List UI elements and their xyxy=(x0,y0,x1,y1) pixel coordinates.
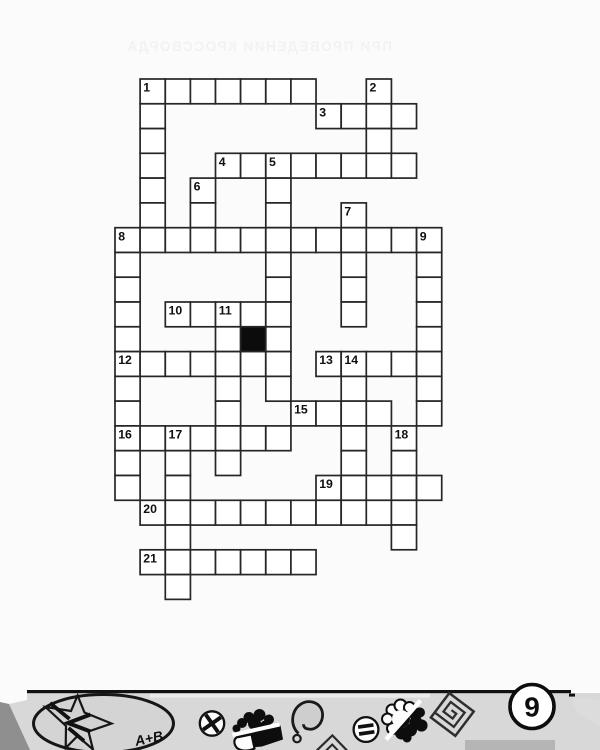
svg-text:8: 8 xyxy=(118,229,125,243)
svg-text:16: 16 xyxy=(118,428,132,442)
svg-text:9: 9 xyxy=(420,229,427,243)
svg-text:15: 15 xyxy=(294,403,308,417)
svg-text:14: 14 xyxy=(344,353,358,367)
svg-text:21: 21 xyxy=(143,551,157,565)
svg-text:2: 2 xyxy=(370,81,377,95)
svg-text:5: 5 xyxy=(269,155,276,169)
svg-text:1: 1 xyxy=(143,81,150,95)
svg-text:11: 11 xyxy=(219,304,232,318)
svg-text:12: 12 xyxy=(118,353,132,367)
svg-text:20: 20 xyxy=(143,502,157,516)
svg-text:13: 13 xyxy=(319,353,333,367)
svg-text:4: 4 xyxy=(219,155,226,169)
svg-text:6: 6 xyxy=(194,180,201,194)
svg-text:18: 18 xyxy=(395,428,409,442)
svg-text:3: 3 xyxy=(319,105,326,119)
svg-text:19: 19 xyxy=(319,477,333,491)
svg-text:17: 17 xyxy=(169,428,183,442)
svg-text:10: 10 xyxy=(169,304,183,318)
svg-text:9: 9 xyxy=(524,692,540,723)
svg-text:7: 7 xyxy=(344,205,351,219)
